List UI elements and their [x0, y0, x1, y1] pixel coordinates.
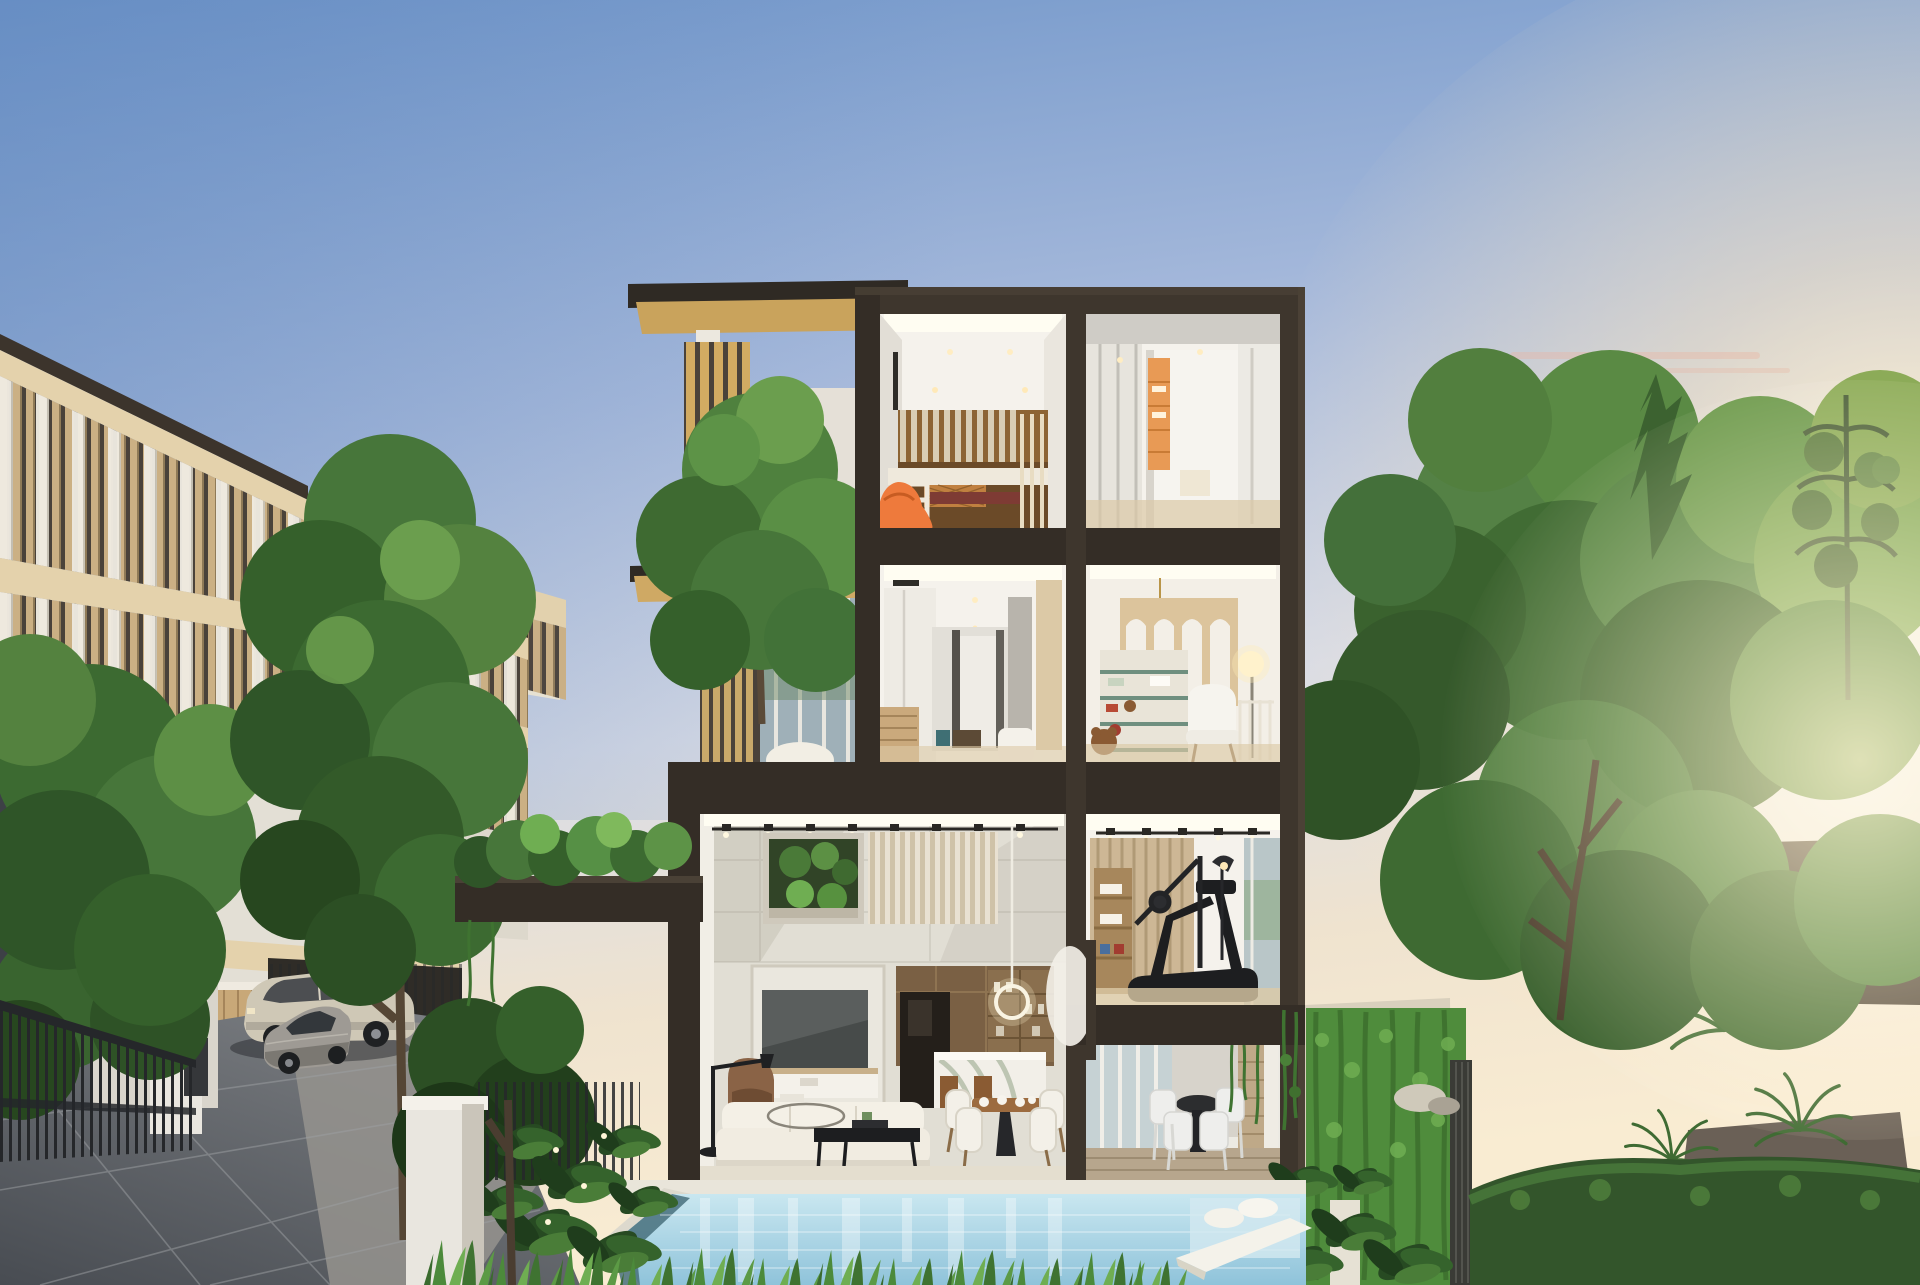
gym-shelf	[1094, 868, 1132, 994]
architectural-rendering	[0, 0, 1920, 1285]
slat-feature-wall	[868, 832, 998, 924]
console-table	[953, 730, 981, 748]
green-window	[763, 833, 864, 924]
wall-light-strip	[893, 352, 898, 410]
frame-left-upper	[855, 287, 880, 787]
living-room	[699, 806, 1066, 1182]
pool-float	[1238, 1198, 1278, 1218]
toy-car	[1106, 704, 1118, 712]
teal-stool	[936, 730, 950, 746]
frame-band-2	[668, 762, 1305, 814]
playroom	[1086, 565, 1280, 766]
pool-float	[1204, 1208, 1244, 1228]
frame-divider	[1066, 287, 1086, 1192]
dressing-room	[1086, 314, 1280, 528]
wardrobe-panel	[1008, 597, 1032, 745]
folded-towels	[1180, 470, 1210, 496]
bunk-bedding	[930, 492, 1022, 504]
teddy-small	[1124, 700, 1136, 712]
bedroom-corridor	[877, 565, 1066, 762]
bunk-room	[878, 314, 1066, 528]
scene-canvas	[0, 0, 1920, 1285]
floor	[1086, 500, 1280, 528]
frame-band-3	[1066, 1005, 1305, 1045]
wood-pilaster	[1036, 580, 1062, 750]
floor-edge	[700, 1166, 1066, 1182]
pool-terrace	[1086, 1045, 1280, 1192]
swimming-pool	[560, 1180, 1312, 1285]
black-table	[814, 1128, 920, 1142]
